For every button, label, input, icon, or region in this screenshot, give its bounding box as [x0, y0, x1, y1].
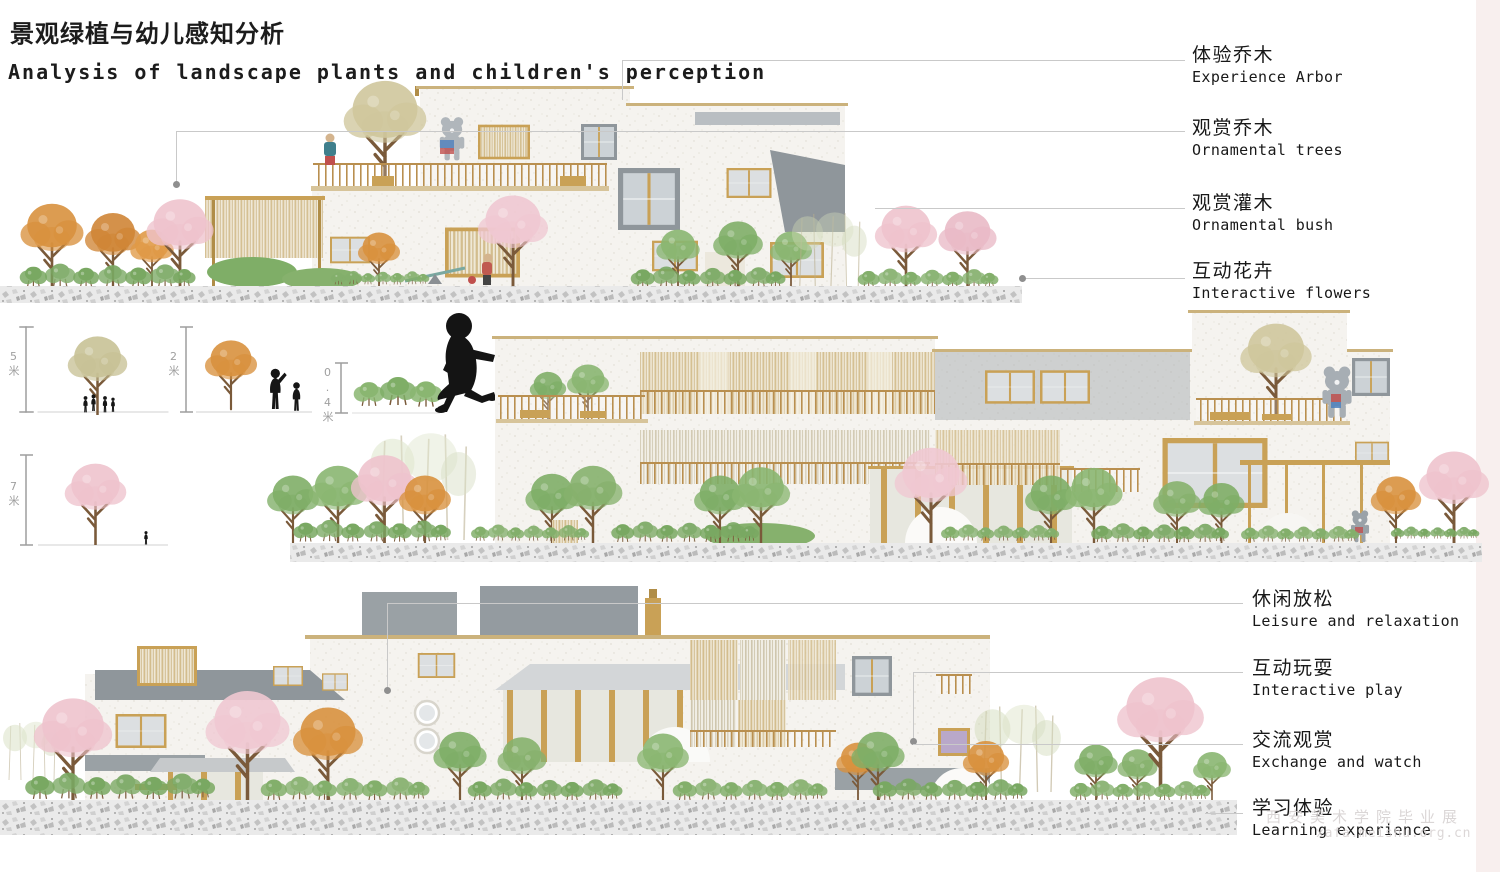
leader-ornamental-trees-v [176, 131, 177, 183]
leader-interactive-flowers [1022, 278, 1185, 279]
page-title-zh: 景观绿植与幼儿感知分析 [10, 14, 285, 49]
analysis-board: 景观绿植与幼儿感知分析 Analysis of landscape plants… [0, 0, 1500, 872]
leader-leisure-v [387, 603, 388, 690]
leader-ornamental-trees [176, 131, 1185, 132]
child-figure [324, 134, 336, 166]
running-child-silhouette [435, 313, 497, 413]
ground-gravel-bottom [0, 800, 1237, 835]
legend-en: Interactive flowers [1192, 284, 1371, 302]
building-middle [492, 310, 1393, 543]
legend-item-ornamental-trees: 观赏乔木 Ornamental trees [1192, 113, 1343, 159]
legend-en: Experience Arbor [1192, 68, 1343, 86]
leader-exchange-watch [913, 744, 1243, 745]
ground-gravel-middle [290, 543, 1482, 562]
leader-learning [1205, 813, 1243, 814]
leader-leisure [387, 603, 1243, 604]
leader-ornamental-trees-dot [173, 181, 180, 188]
legend-zh: 体验乔木 [1192, 40, 1343, 67]
scale-study-04m [335, 363, 442, 413]
scale-study-7m [20, 455, 168, 545]
legend-zh: 休闲放松 [1252, 584, 1459, 611]
legend-zh: 互动花卉 [1192, 256, 1371, 283]
elevation-top [0, 45, 1040, 305]
scale-label-04m: 0.4米 [322, 366, 333, 424]
watermark-text: 西安美术学院毕业展 [1266, 806, 1464, 827]
scale-label-7m: 7米 [8, 480, 19, 508]
leader-experience-arbor [622, 60, 1185, 61]
scale-label-2m: 2米 [168, 350, 179, 378]
ground-gravel [0, 286, 1022, 303]
leader-interactive-play [913, 672, 1243, 673]
watermark-url: xafa.meishu.org.cn [1316, 826, 1471, 841]
leader-leisure-dot [384, 687, 391, 694]
leader-experience-arbor-v [622, 60, 623, 100]
legend-en: Interactive play [1252, 681, 1403, 699]
legend-item-exchange-watch: 交流观赏 Exchange and watch [1252, 725, 1422, 771]
scale-study-5m [20, 327, 168, 415]
legend-item-ornamental-bush: 观赏灌木 Ornamental bush [1192, 188, 1333, 234]
legend-zh: 观赏乔木 [1192, 113, 1343, 140]
legend-en: Leisure and relaxation [1252, 612, 1459, 630]
leader-interactive-flowers-dot [1019, 275, 1026, 282]
legend-zh: 互动玩耍 [1252, 653, 1403, 680]
elevation-middle [0, 305, 1500, 570]
legend-item-leisure: 休闲放松 Leisure and relaxation [1252, 584, 1459, 630]
scale-study-2m [180, 327, 312, 412]
legend-zh: 交流观赏 [1252, 725, 1422, 752]
legend-zh: 观赏灌木 [1192, 188, 1333, 215]
legend-item-experience-arbor: 体验乔木 Experience Arbor [1192, 40, 1343, 86]
scale-label-5m: 5米 [8, 350, 19, 378]
elevation-bottom [0, 570, 1260, 872]
legend-en: Ornamental trees [1192, 141, 1343, 159]
leader-interactive-play-v [913, 672, 914, 741]
legend-en: Ornamental bush [1192, 216, 1333, 234]
legend-en: Exchange and watch [1252, 753, 1422, 771]
legend-item-interactive-play: 互动玩耍 Interactive play [1252, 653, 1403, 699]
leader-ornamental-bush [875, 208, 1185, 209]
legend-item-interactive-flowers: 互动花卉 Interactive flowers [1192, 256, 1371, 302]
